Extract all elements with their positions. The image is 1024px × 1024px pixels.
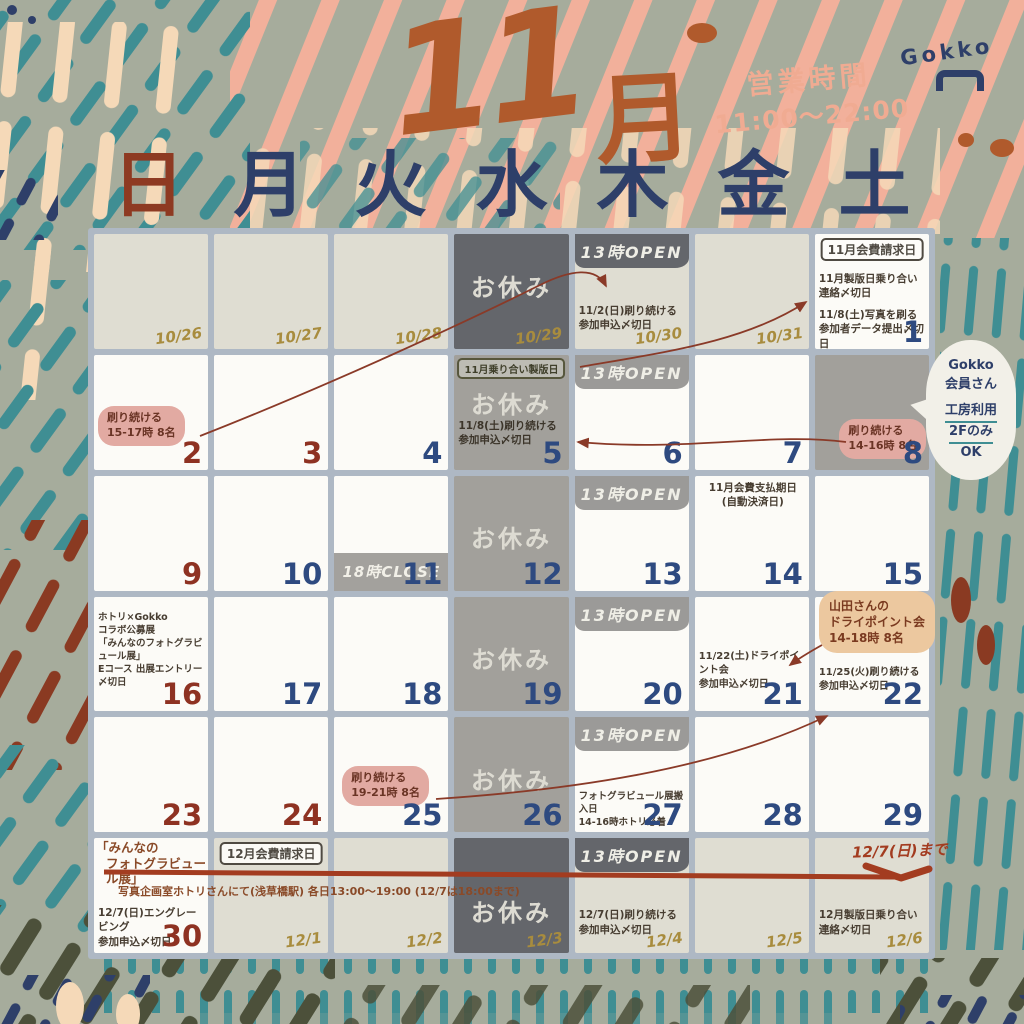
speech-line: Gokko [948, 357, 993, 376]
date-number: 25 [402, 798, 442, 832]
date-number: 9 [182, 557, 202, 591]
cell-29[interactable]: 29 [815, 717, 929, 832]
cell-16[interactable]: ホトリ×Gokkoコラボ公募展「みんなのフォトグラビュール展」Eコース 出展エン… [94, 597, 208, 712]
closed-label: お休み [454, 519, 568, 554]
closed-label: お休み [454, 385, 568, 420]
date-number: 30 [162, 919, 202, 953]
date-number: 12/5 [765, 929, 804, 952]
cell-6[interactable]: 13時OPEN6 [575, 355, 689, 470]
cell-2[interactable]: 刷り続ける15-17時 8名2 [94, 355, 208, 470]
date-number: 20 [642, 677, 682, 711]
cell-19[interactable]: お休み19 [454, 597, 568, 712]
cell-24[interactable]: 24 [214, 717, 328, 832]
date-number: 10/29 [514, 324, 563, 348]
date-number: 12/1 [284, 929, 323, 952]
closed-label: お休み [454, 268, 568, 303]
open-time-banner: 13時OPEN [575, 838, 689, 872]
date-number: 12/6 [885, 929, 924, 952]
date-number: 18 [402, 677, 442, 711]
date-number: 16 [162, 677, 202, 711]
exhibition-until-label: 12/7(日)まで [852, 838, 948, 862]
cell-10-28[interactable]: 10/28 [334, 234, 448, 349]
cell-22[interactable]: 山田さんのドライポイント会14-18時 8名11/25(火)刷り続ける参加申込〆… [815, 597, 929, 712]
cell-10-31[interactable]: 10/31 [695, 234, 809, 349]
cell-13[interactable]: 13時OPEN13 [575, 476, 689, 591]
open-time-banner: 13時OPEN [575, 355, 689, 389]
weekday-0: 日 [88, 142, 209, 228]
event-bubble[interactable]: 刷り続ける15-17時 8名 [98, 406, 185, 446]
weekday-6: 土 [814, 142, 935, 228]
cell-4[interactable]: 4 [334, 355, 448, 470]
speech-line: 会員さん [945, 376, 997, 395]
speech-line: 工房利用 [945, 402, 997, 423]
speech-line: OK [960, 444, 981, 463]
date-number: 4 [422, 436, 442, 470]
logo-mark-icon [936, 70, 984, 91]
calendar-grid: 10/2610/2710/28お休み10/2913時OPEN11/2(日)刷り続… [88, 228, 935, 959]
cell-11[interactable]: 18時CLOSE11 [334, 476, 448, 591]
cell-10-27[interactable]: 10/27 [214, 234, 328, 349]
weekday-3: 水 [451, 142, 572, 228]
date-number: 10/31 [755, 324, 804, 348]
exhibition-title: 「みんなのフォトグラビュール展」 [96, 840, 208, 887]
cell-notes: 11月会費支払期日(自動決済日) [699, 481, 807, 510]
date-number: 10/26 [154, 324, 203, 348]
open-time-banner: 13時OPEN [575, 476, 689, 510]
speech-line: 2Fのみ [949, 423, 993, 444]
member-speech-bubble: Gokko 会員さん 工房利用 2Fのみ OK [926, 340, 1016, 480]
date-number: 13 [642, 557, 682, 591]
date-number: 6 [663, 436, 683, 470]
closed-label: お休み [454, 640, 568, 675]
boxed-label: 12月会費請求日 [220, 842, 323, 865]
cell-1[interactable]: 11月会費請求日11月製版日乗り合い連絡〆切日11/8(土)写真を刷る参加者デー… [815, 234, 929, 349]
cell-12[interactable]: お休み12 [454, 476, 568, 591]
date-number: 15 [883, 557, 923, 591]
cell-15[interactable]: 15 [815, 476, 929, 591]
cell-20[interactable]: 13時OPEN20 [575, 597, 689, 712]
date-number: 26 [522, 798, 562, 832]
cell-9[interactable]: 9 [94, 476, 208, 591]
weekday-4: 木 [572, 142, 693, 228]
date-number: 28 [762, 798, 802, 832]
date-number: 12 [522, 557, 562, 591]
date-number: 21 [762, 677, 802, 711]
cell-23[interactable]: 23 [94, 717, 208, 832]
date-number: 22 [883, 677, 923, 711]
cell-26[interactable]: お休み26 [454, 717, 568, 832]
date-number: 2 [182, 436, 202, 470]
weekday-1: 月 [209, 142, 330, 228]
cell-18[interactable]: 18 [334, 597, 448, 712]
closed-label: お休み [454, 761, 568, 796]
cell-28[interactable]: 28 [695, 717, 809, 832]
date-number: 19 [522, 677, 562, 711]
cell-25[interactable]: 刷り続ける19-21時 8名25 [334, 717, 448, 832]
weekday-row: 日月火水木金土 [88, 142, 935, 228]
cell-10-30[interactable]: 13時OPEN11/2(日)刷り続ける参加申込〆切日10/30 [575, 234, 689, 349]
date-number: 1 [903, 315, 923, 349]
date-number: 5 [542, 436, 562, 470]
cell-5[interactable]: 11月乗り合い製版日お休み11/8(土)刷り続ける参加申込〆切日5 [454, 355, 568, 470]
open-time-banner: 13時OPEN [575, 234, 689, 268]
event-bubble[interactable]: 山田さんのドライポイント会14-18時 8名 [819, 591, 935, 654]
date-number: 10/28 [394, 324, 443, 348]
cell-27[interactable]: 13時OPENフォトグラビュール展搬入日14-16時ホトリ必着27 [575, 717, 689, 832]
cell-12-5[interactable]: 12/5 [695, 838, 809, 953]
date-number: 12/2 [405, 929, 444, 952]
date-number: 10 [282, 557, 322, 591]
date-number: 12/4 [645, 929, 684, 952]
open-time-banner: 13時OPEN [575, 597, 689, 631]
open-time-banner: 13時OPEN [575, 717, 689, 751]
date-number: 11 [402, 557, 442, 591]
weekday-5: 金 [693, 142, 814, 228]
cell-21[interactable]: 11/22(土)ドライポイント会参加申込〆切日21 [695, 597, 809, 712]
exhibition-venue-note: 写真企画室ホトリさんにて(浅草橋駅) 各日13:00〜19:00 (12/7は1… [118, 883, 658, 899]
date-number: 29 [883, 798, 923, 832]
date-number: 7 [783, 436, 803, 470]
boxed-label: 11月会費請求日 [821, 238, 924, 261]
cell-17[interactable]: 17 [214, 597, 328, 712]
date-number: 8 [903, 436, 923, 470]
boxed-label: 11月乗り合い製版日 [458, 358, 566, 379]
cell-3[interactable]: 3 [214, 355, 328, 470]
cell-14[interactable]: 11月会費支払期日(自動決済日)14 [695, 476, 809, 591]
date-number: 17 [282, 677, 322, 711]
cell-7[interactable]: 7 [695, 355, 809, 470]
cell-10-29[interactable]: お休み10/29 [454, 234, 568, 349]
cell-10-26[interactable]: 10/26 [94, 234, 208, 349]
cell-10[interactable]: 10 [214, 476, 328, 591]
date-number: 23 [162, 798, 202, 832]
date-number: 12/3 [525, 929, 564, 952]
date-number: 14 [762, 557, 802, 591]
date-number: 3 [302, 436, 322, 470]
date-number: 27 [642, 798, 682, 832]
weekday-2: 火 [330, 142, 451, 228]
date-number: 10/27 [274, 324, 323, 348]
date-number: 24 [282, 798, 322, 832]
